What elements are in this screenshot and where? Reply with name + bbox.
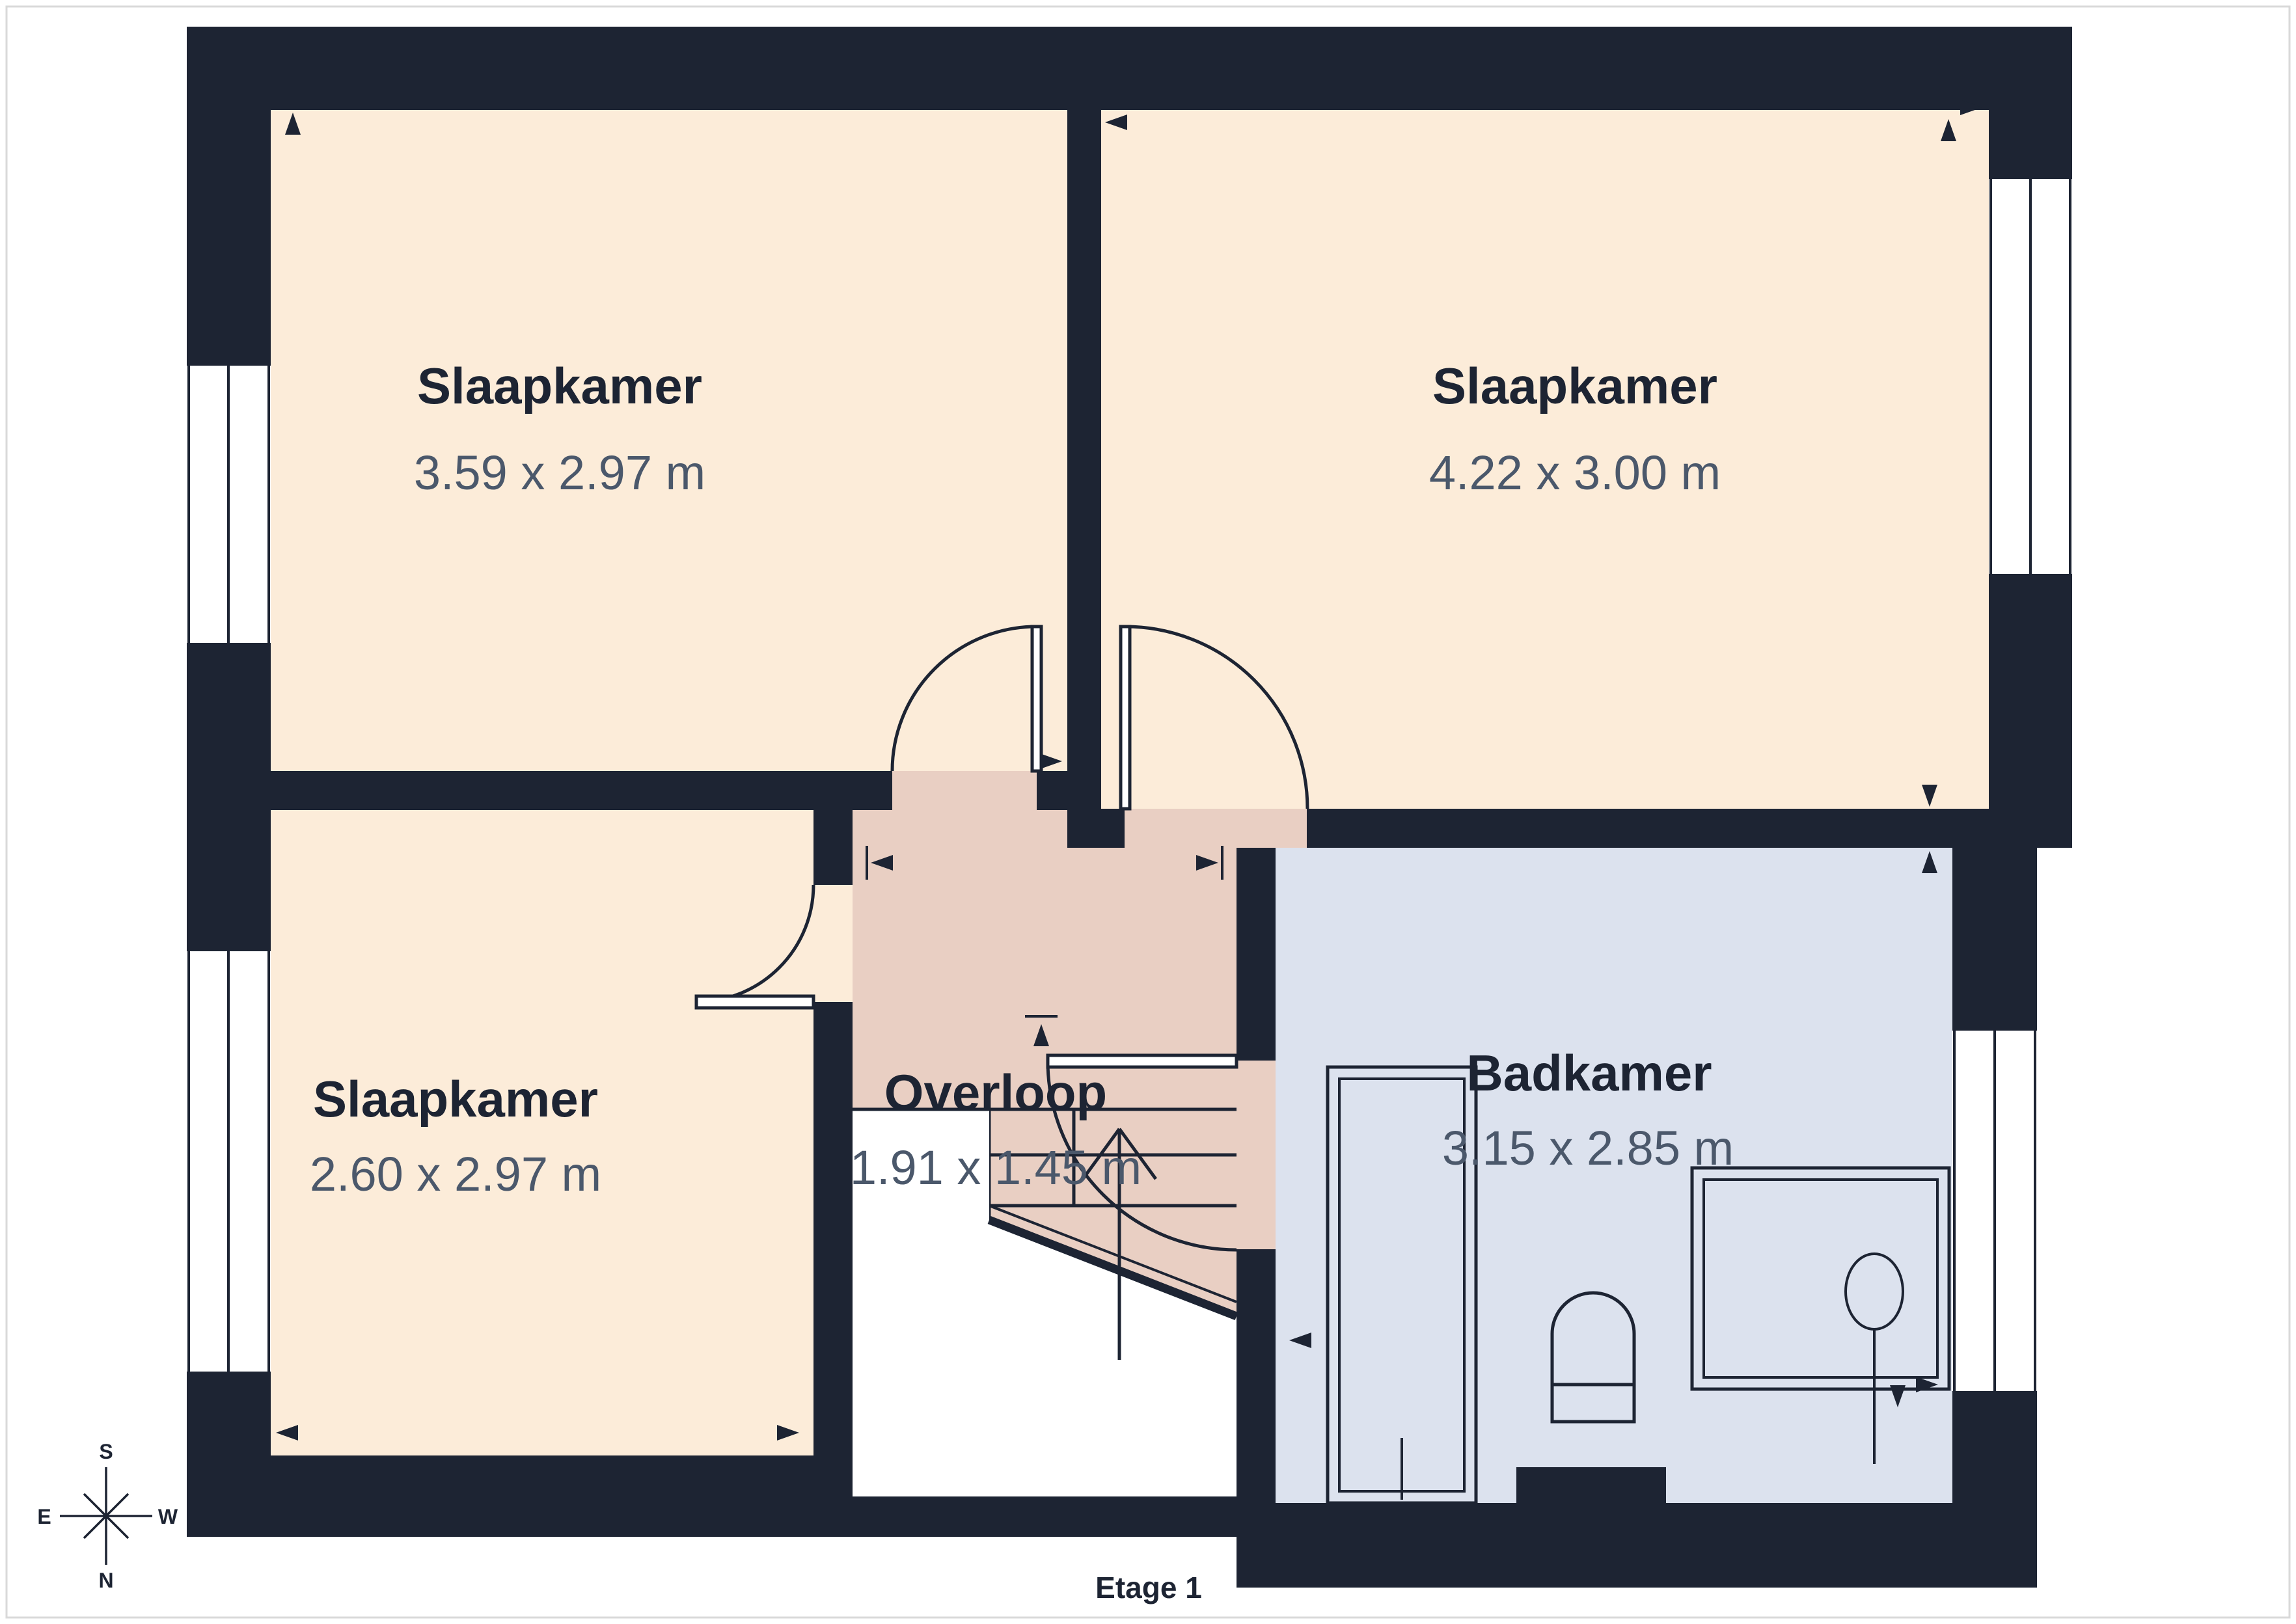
room-dim-bedroom-tl: 3.59 x 2.97 m	[414, 446, 705, 500]
room-bedroom-top-left	[271, 110, 1067, 771]
room-title-bathroom: Badkamer	[1466, 1044, 1712, 1102]
door-opening-bedroom-tl	[892, 771, 1037, 810]
room-bedroom-bottom-left	[271, 810, 813, 1455]
compass-rose-icon: S E W N	[37, 1440, 178, 1592]
room-dim-bedroom-tr: 4.22 x 3.00 m	[1429, 446, 1721, 500]
compass-label-top: S	[99, 1440, 113, 1463]
compass-label-left: E	[37, 1505, 51, 1528]
room-title-landing: Overloop	[884, 1064, 1107, 1121]
room-bathroom	[1276, 848, 1952, 1503]
door-opening-bedroom-tr	[1125, 809, 1307, 848]
door-opening-bathroom	[1237, 1061, 1276, 1249]
door-opening-bedroom-bl	[813, 885, 853, 1002]
window-bedroom-bottom-left	[187, 950, 271, 1373]
room-title-bedroom-bl: Slaapkamer	[313, 1070, 598, 1128]
compass-label-bottom: N	[98, 1569, 113, 1592]
floorplan-canvas: Slaapkamer 3.59 x 2.97 m Slaapkamer 4.22…	[0, 0, 2296, 1624]
room-title-bedroom-tl: Slaapkamer	[417, 357, 702, 414]
room-dim-bedroom-bl: 2.60 x 2.97 m	[310, 1147, 601, 1201]
room-dim-bathroom: 3.15 x 2.85 m	[1442, 1121, 1734, 1175]
window-bathroom	[1952, 1029, 2037, 1392]
room-dim-landing: 1.91 x 1.45 m	[850, 1141, 1141, 1195]
room-title-bedroom-tr: Slaapkamer	[1432, 357, 1717, 414]
compass-label-right: W	[158, 1505, 178, 1528]
floor-caption: Etage 1	[1095, 1571, 1202, 1604]
window-bedroom-top-left	[187, 364, 271, 644]
window-bedroom-top-right	[1989, 178, 2072, 575]
